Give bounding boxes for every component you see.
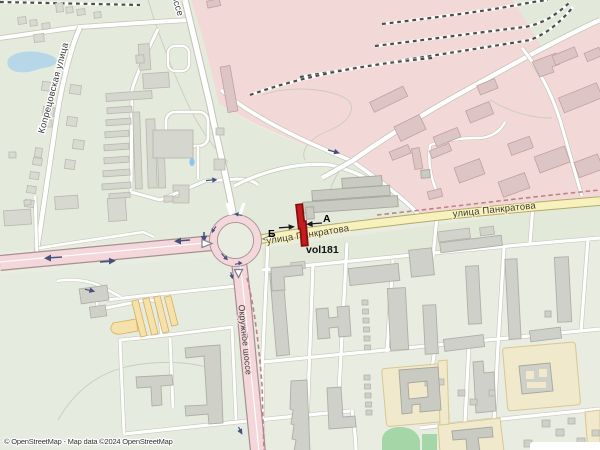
svg-text:Б: Б xyxy=(268,228,276,240)
svg-text:© OpenStreetMap - Map data ©20: © OpenStreetMap - Map data ©2024 OpenStr… xyxy=(4,437,173,446)
svg-text:А: А xyxy=(323,213,331,225)
svg-text:vol181: vol181 xyxy=(306,244,339,256)
